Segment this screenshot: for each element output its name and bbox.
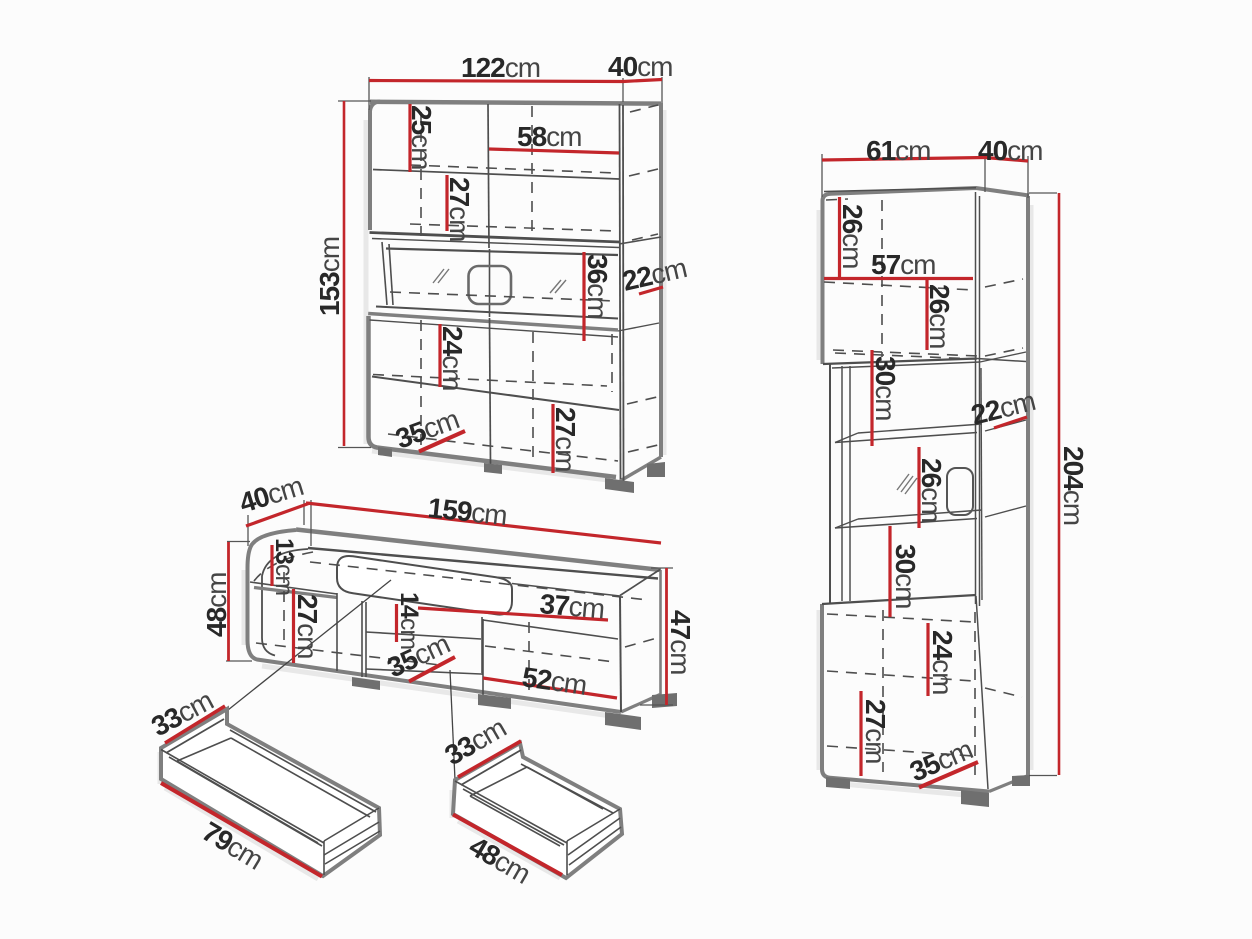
svg-text:153cm: 153cm: [314, 237, 345, 316]
svg-text:40cm: 40cm: [608, 51, 672, 82]
svg-text:13cm: 13cm: [270, 538, 298, 595]
svg-text:37cm: 37cm: [538, 588, 605, 625]
svg-text:25cm: 25cm: [406, 105, 437, 169]
svg-text:26cm: 26cm: [916, 458, 947, 522]
svg-text:40cm: 40cm: [978, 135, 1042, 166]
svg-text:26cm: 26cm: [837, 204, 868, 268]
svg-text:24cm: 24cm: [437, 326, 468, 390]
svg-text:48cm: 48cm: [201, 573, 232, 637]
svg-text:122cm: 122cm: [461, 52, 540, 83]
svg-text:26cm: 26cm: [924, 284, 955, 348]
svg-text:36cm: 36cm: [582, 254, 613, 318]
svg-text:204cm: 204cm: [1058, 446, 1089, 525]
svg-text:58cm: 58cm: [517, 121, 581, 152]
svg-text:27cm: 27cm: [444, 177, 475, 241]
svg-text:30cm: 30cm: [870, 356, 901, 420]
svg-text:27cm: 27cm: [550, 407, 581, 471]
svg-text:61cm: 61cm: [866, 135, 930, 166]
svg-text:27cm: 27cm: [292, 594, 323, 658]
svg-text:57cm: 57cm: [871, 249, 935, 280]
svg-text:27cm: 27cm: [860, 699, 891, 763]
svg-text:24cm: 24cm: [927, 630, 958, 694]
svg-text:47cm: 47cm: [665, 610, 696, 674]
svg-text:30cm: 30cm: [890, 544, 921, 608]
